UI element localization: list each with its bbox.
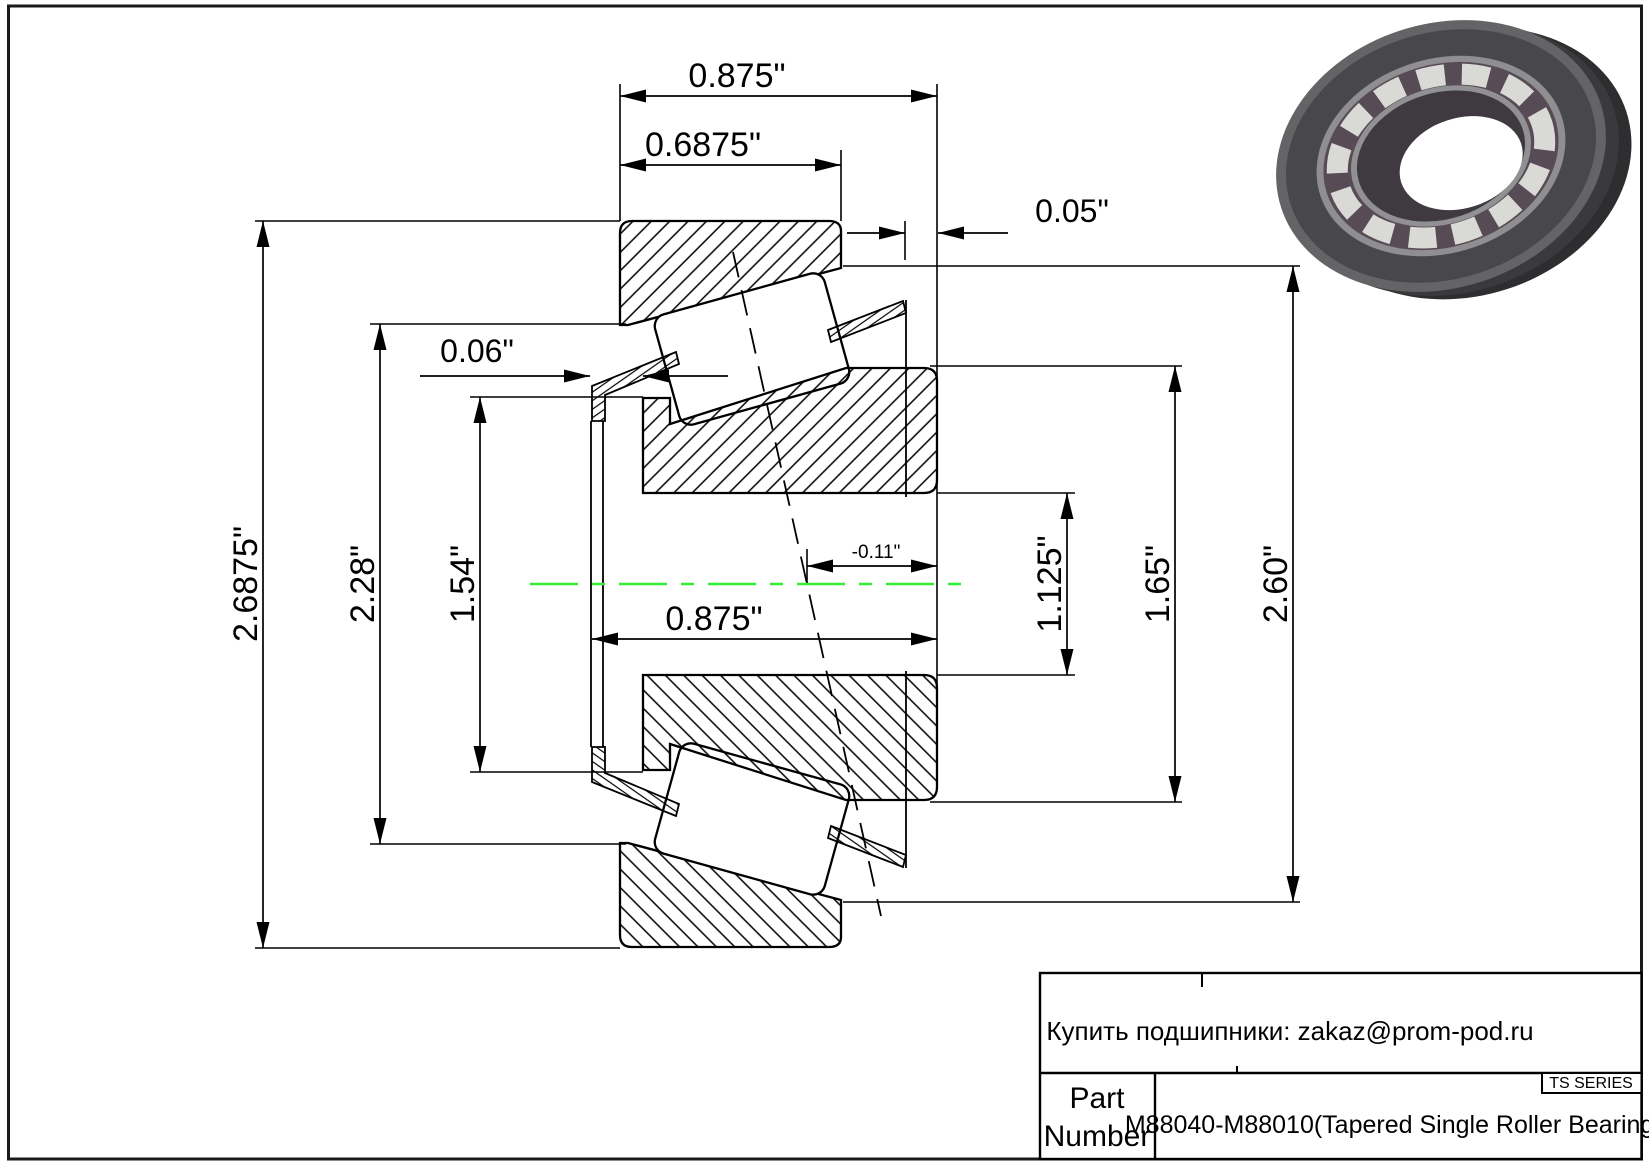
dim-front-diameter-label: 1.54" [444, 545, 482, 623]
part-label-line1: Part [1069, 1082, 1125, 1115]
series-label: TS SERIES [1549, 1075, 1633, 1092]
supplier-note: Купить подшипники: zakaz@prom-pod.ru [1046, 1016, 1533, 1046]
dim-bore-diameter-label: 1.125" [1031, 535, 1069, 632]
dim-rib-diameter-label: 1.65" [1139, 545, 1177, 623]
cage-back-upper [828, 301, 906, 342]
dim-cone-width-label: 0.875" [665, 600, 762, 638]
bearing-drawing-svg: 0.875" 0.6875" 0.05" 0.06" -0.11" 0.875"… [0, 0, 1649, 1167]
dim-overall-width-label: 0.875" [688, 57, 785, 95]
drawing-page: 0.875" 0.6875" 0.05" 0.06" -0.11" 0.875"… [0, 0, 1649, 1167]
part-number-value: M88040-M88010(Tapered Single Roller Bear… [1125, 1111, 1649, 1139]
dim-cup-width-label: 0.6875" [645, 126, 761, 164]
bearing-3d-render [1240, 0, 1649, 348]
dim-cup-od-label: 2.60" [1257, 545, 1295, 623]
dim-race-diameter-label: 2.28" [344, 545, 382, 623]
dim-outer-diameter-label: 2.6875" [227, 526, 265, 642]
section-lower-half [592, 675, 937, 947]
title-block: Купить подшипники: zakaz@prom-pod.ru Par… [1040, 973, 1649, 1159]
dim-effective-center-label: -0.11" [852, 542, 901, 563]
section-upper-half [592, 221, 937, 493]
cage-back-lower [828, 826, 906, 867]
dim-front-standout-label: 0.06" [440, 333, 514, 369]
dim-back-standout-label: 0.05" [1035, 193, 1109, 229]
